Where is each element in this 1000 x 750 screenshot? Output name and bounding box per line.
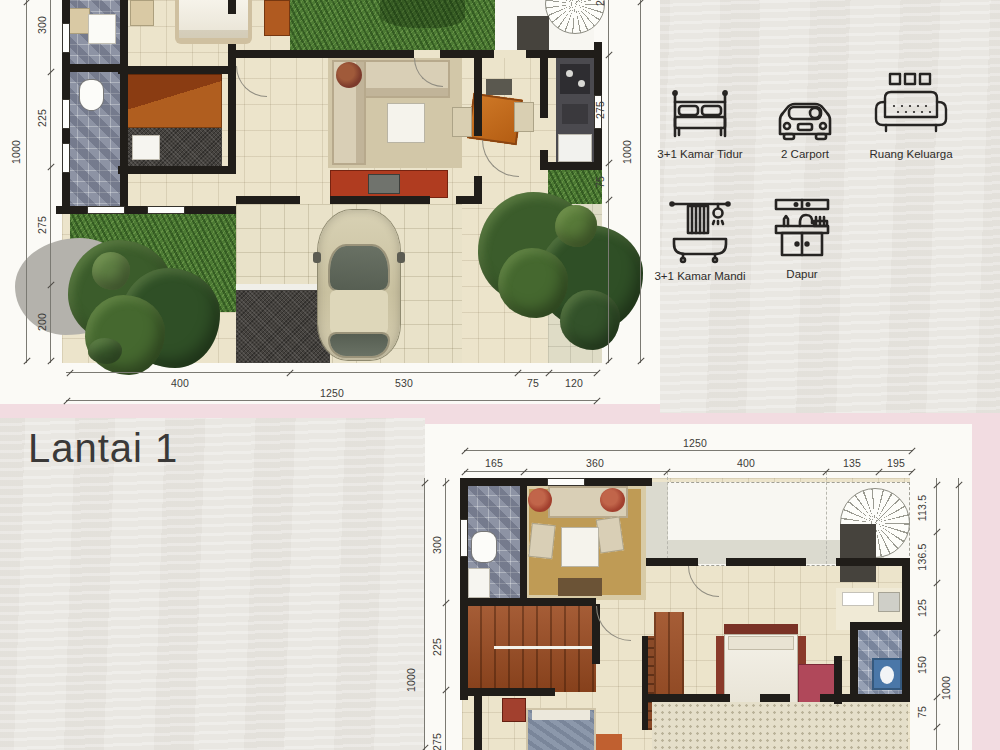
plan1-kitchen-appliance — [562, 104, 588, 124]
dim-label: 75 — [916, 690, 928, 734]
dim-label: 225 — [431, 625, 443, 669]
dim-label: 225 — [36, 96, 48, 140]
plan2-armchair-red — [600, 488, 625, 512]
window — [461, 520, 467, 556]
dim-label: 75 — [594, 160, 606, 204]
door-opening — [414, 50, 440, 58]
plan1-kitchen-sink — [558, 134, 592, 162]
wall — [228, 44, 236, 174]
plan1-sink — [88, 14, 116, 44]
dim-label: 360 — [565, 457, 625, 469]
dimension-line — [608, 0, 609, 363]
legend-item-carport: 2 Carport — [757, 94, 853, 160]
wall — [330, 196, 430, 204]
plan1-coffee-table — [388, 104, 424, 142]
tree — [85, 295, 165, 375]
plan2-bed-pillow — [532, 710, 590, 720]
wall — [120, 0, 128, 212]
dim-label: 1250 — [655, 437, 735, 449]
bed-icon — [668, 90, 732, 142]
plan1-burner — [566, 70, 573, 77]
dimension-line — [445, 478, 446, 750]
plan1-plant — [336, 62, 362, 88]
car-mirror-left — [313, 252, 321, 263]
dim-label: 1000 — [621, 130, 633, 174]
legend-label: 3+1 Kamar Mandi — [650, 270, 750, 282]
plan2-coffee-table — [562, 528, 598, 566]
tree-highlight — [555, 205, 597, 247]
window — [548, 479, 584, 485]
legend-item-bathrooms: 3+1 Kamar Mandi — [650, 196, 750, 282]
dim-label: 400 — [716, 457, 776, 469]
wall — [520, 484, 527, 600]
plan1-wardrobe-room — [123, 74, 222, 128]
legend-label: Dapur — [754, 268, 850, 280]
car — [318, 210, 400, 360]
wall — [236, 196, 300, 204]
dimension-line — [66, 372, 598, 373]
kitchen-icon — [770, 196, 834, 262]
car-rear-window — [330, 334, 388, 356]
dimension-line — [50, 0, 51, 363]
wall — [474, 692, 482, 750]
dim-label: 2 — [594, 0, 606, 25]
plan2-chair — [528, 523, 555, 559]
wall — [474, 52, 482, 136]
window — [63, 144, 69, 172]
dim-label: 1000 — [10, 130, 22, 174]
dimension-line — [464, 450, 913, 451]
plan1-dining-chair-left — [452, 107, 472, 137]
dim-label: 275 — [594, 88, 606, 132]
legend-item-bedrooms: 3+1 Kamar Tidur — [650, 90, 750, 160]
floor-label: Lantai 1 — [28, 426, 178, 471]
plan2-wood-room-line — [494, 646, 596, 649]
car-roof — [330, 290, 388, 334]
plan1-burner — [578, 80, 585, 87]
window — [63, 100, 69, 128]
window — [63, 24, 69, 52]
plan2-terrace — [652, 702, 908, 750]
bush — [88, 338, 122, 364]
dim-label: 136.5 — [916, 535, 928, 579]
guide-line — [667, 472, 668, 564]
tree — [498, 248, 568, 318]
wall — [646, 694, 730, 702]
dim-label: 300 — [36, 3, 48, 47]
dim-label: 1250 — [292, 387, 372, 399]
wall — [118, 166, 236, 174]
dim-label: 400 — [140, 377, 220, 389]
legend-label: Ruang Keluarga — [858, 148, 964, 160]
legend-label: 2 Carport — [757, 148, 853, 160]
tree-highlight — [92, 252, 130, 290]
car-icon — [774, 94, 836, 142]
tree — [560, 290, 620, 350]
wall — [850, 622, 908, 630]
dim-label: 165 — [464, 457, 524, 469]
dim-label: 195 — [866, 457, 926, 469]
plan2-master-pillows — [728, 636, 794, 650]
plan2-chair — [596, 516, 624, 553]
wall — [726, 558, 806, 566]
dimension-line — [66, 400, 598, 401]
legend-item-family-room: Ruang Keluarga — [858, 72, 964, 160]
dim-label: 113.5 — [916, 486, 928, 530]
wall — [228, 0, 236, 14]
wall — [474, 176, 482, 204]
dimension-line — [26, 0, 27, 363]
wall — [760, 694, 790, 702]
plan1-dining-chair-top — [486, 79, 512, 95]
bathtub-icon — [668, 196, 732, 264]
wall — [56, 206, 236, 214]
door-opening — [494, 50, 526, 58]
plan1-toilet — [80, 80, 103, 110]
wall — [460, 598, 596, 606]
plan1-nightstand — [130, 0, 154, 26]
wall — [540, 52, 548, 118]
plan2-shelf — [842, 592, 874, 606]
wall — [460, 478, 468, 700]
plan2-bench — [558, 578, 602, 596]
car-mirror-right — [397, 252, 405, 263]
dimension-line — [640, 0, 641, 363]
dim-label: 75 — [513, 377, 553, 389]
plan1-bed-mattress — [179, 0, 248, 38]
plan1-cabinet — [264, 0, 290, 36]
wall — [836, 558, 910, 566]
dim-label: 1000 — [940, 666, 952, 710]
plan1-tv — [368, 174, 400, 194]
window — [148, 207, 184, 213]
wall — [642, 636, 648, 730]
dim-label: 200 — [36, 300, 48, 344]
wall — [540, 162, 602, 170]
plan2-shelf — [878, 592, 900, 612]
window — [88, 207, 124, 213]
dimension-line — [464, 471, 913, 472]
plan1-washer — [132, 135, 160, 160]
dim-label: 530 — [364, 377, 444, 389]
dimension-line — [424, 478, 425, 750]
plan2-nightstand-red — [502, 698, 526, 722]
plan1-driveway — [236, 290, 330, 363]
sofa-icon — [872, 72, 950, 142]
plan2-toilet — [472, 532, 496, 562]
plan1-stair-landing — [517, 16, 549, 50]
dim-label: 125 — [916, 586, 928, 630]
car-windshield — [330, 246, 388, 290]
plan2-dresser — [596, 734, 622, 750]
plan1-dining-chair-right — [514, 102, 534, 132]
wall — [820, 694, 910, 702]
dimension-line — [936, 478, 937, 750]
plan2-armchair-red — [528, 488, 552, 512]
plan2-tub — [880, 666, 894, 684]
wall — [118, 66, 236, 74]
wall — [850, 622, 858, 700]
plan1-garden-shade — [380, 0, 465, 28]
plan2-sink — [468, 568, 490, 598]
wall — [646, 558, 698, 566]
legend-item-kitchen: Dapur — [754, 196, 850, 280]
dimension-line — [958, 478, 959, 750]
dim-label: 275 — [431, 720, 443, 750]
plan2-stair-landing — [840, 524, 876, 582]
plan1-bath-counter — [68, 8, 90, 34]
page-background: 1000 300 225 275 200 2 275 75 1000 400 5… — [0, 0, 1000, 750]
dim-label: 275 — [36, 203, 48, 247]
dim-label: 300 — [431, 523, 443, 567]
plan1-stove — [560, 64, 590, 94]
legend-label: 3+1 Kamar Tidur — [650, 148, 750, 160]
dim-label: 120 — [554, 377, 594, 389]
guide-line — [826, 472, 827, 564]
dim-label: 1000 — [405, 658, 417, 702]
dim-label: 150 — [916, 643, 928, 687]
